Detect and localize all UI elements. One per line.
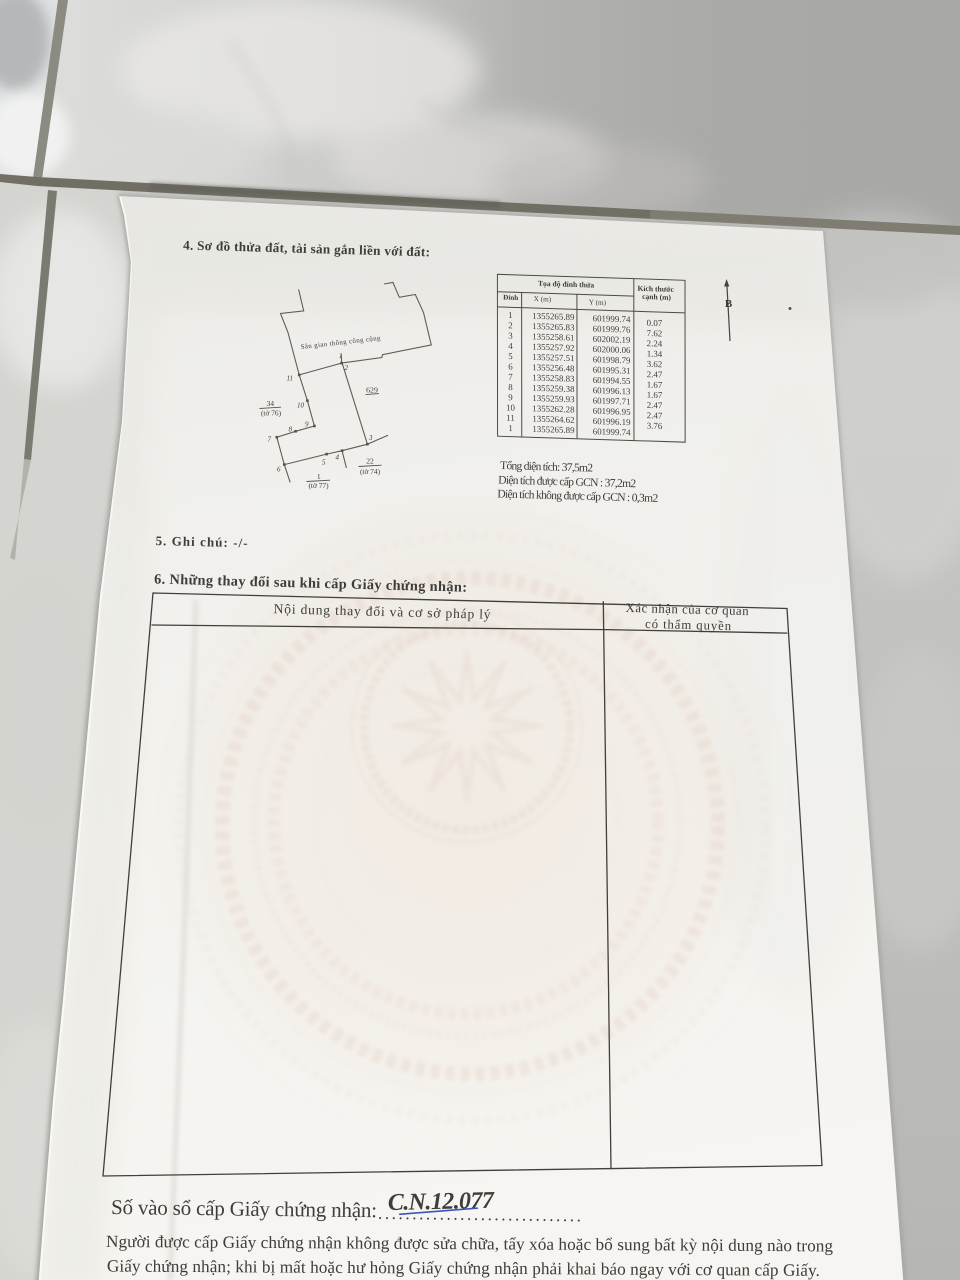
svg-text:6: 6 [277, 466, 281, 474]
svg-text:11: 11 [287, 375, 293, 383]
svg-text:0.07: 0.07 [647, 318, 663, 329]
svg-text:1.67: 1.67 [647, 379, 663, 390]
svg-text:1355265.89: 1355265.89 [532, 424, 575, 435]
svg-text:4: 4 [508, 341, 513, 351]
svg-text:(tờ 74): (tờ 74) [360, 467, 381, 476]
svg-text:Y (m): Y (m) [589, 298, 607, 307]
svg-text:8: 8 [289, 426, 293, 434]
svg-text:22: 22 [366, 457, 374, 466]
svg-text:Đỉnh: Đỉnh [503, 293, 518, 301]
svg-text:7: 7 [508, 372, 513, 382]
svg-text:10: 10 [297, 402, 305, 410]
svg-text:629: 629 [366, 386, 378, 395]
svg-text:7: 7 [268, 436, 272, 444]
svg-text:2.24: 2.24 [647, 338, 663, 349]
svg-text:11: 11 [506, 413, 515, 423]
svg-text:1.34: 1.34 [647, 348, 663, 359]
svg-text:1: 1 [508, 310, 512, 320]
svg-text:cạnh (m): cạnh (m) [642, 292, 671, 302]
svg-text:5. Ghi chú: -/-: 5. Ghi chú: -/- [155, 533, 247, 550]
svg-text:8: 8 [508, 382, 513, 392]
svg-text:4: 4 [336, 454, 340, 462]
svg-text:6: 6 [508, 361, 513, 371]
svg-text:2: 2 [508, 320, 512, 330]
svg-text:2.47: 2.47 [647, 369, 663, 380]
svg-text:601999.74: 601999.74 [593, 426, 631, 437]
svg-text:Tổng diện tích: 37,5m2: Tổng diện tích: 37,5m2 [500, 459, 594, 475]
svg-text:7.62: 7.62 [647, 328, 663, 338]
svg-text:Tọa độ đỉnh thửa: Tọa độ đỉnh thửa [538, 279, 594, 290]
svg-text:1: 1 [317, 472, 321, 481]
svg-text:C.N.12.077: C.N.12.077 [388, 1188, 496, 1216]
svg-text:3: 3 [368, 434, 373, 442]
svg-text:X (m): X (m) [534, 295, 552, 304]
svg-text:3: 3 [508, 331, 513, 341]
svg-text:9: 9 [305, 421, 309, 429]
svg-text:1: 1 [508, 423, 512, 433]
svg-text:3.76: 3.76 [647, 420, 663, 431]
svg-text:(tờ 77): (tờ 77) [308, 481, 329, 490]
svg-text:5: 5 [322, 459, 326, 467]
svg-text:2.47: 2.47 [647, 410, 663, 421]
svg-text:34: 34 [267, 399, 275, 408]
svg-text:B: B [725, 298, 733, 310]
svg-text:Số vào sổ cấp Giấy chứng nhận:: Số vào sổ cấp Giấy chứng nhận: [111, 1195, 377, 1222]
svg-text:1: 1 [339, 352, 343, 360]
svg-text:(tờ 76): (tờ 76) [261, 409, 282, 418]
svg-text:2: 2 [345, 364, 349, 372]
svg-text:10: 10 [506, 402, 515, 412]
svg-text:9: 9 [508, 392, 513, 402]
svg-text:3.62: 3.62 [647, 359, 663, 369]
svg-text:có thẩm quyền: có thẩm quyền [645, 617, 732, 633]
svg-text:2.47: 2.47 [647, 400, 663, 411]
svg-text:1.67: 1.67 [647, 390, 663, 401]
svg-text:5: 5 [508, 351, 513, 361]
